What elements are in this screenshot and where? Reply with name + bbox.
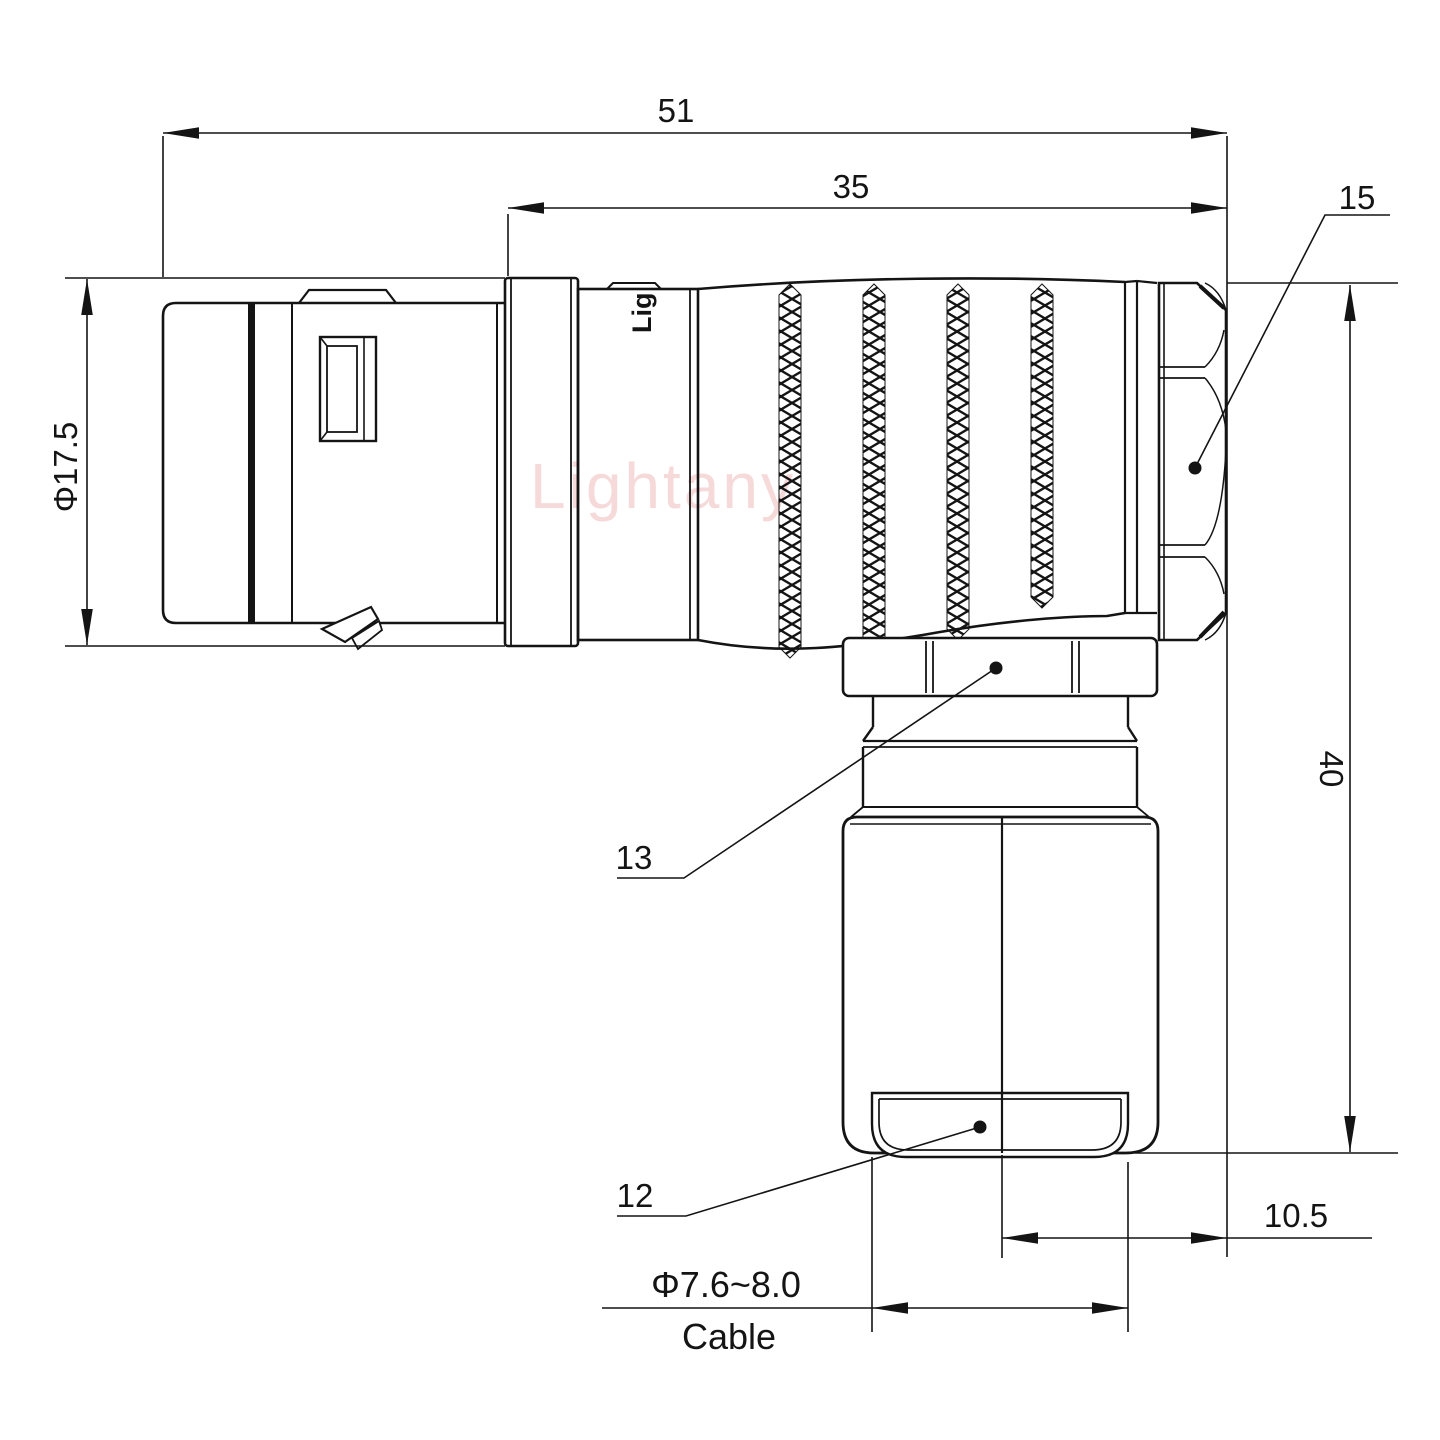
cable-word-label: Cable xyxy=(682,1316,776,1357)
dim-front-diameter-label: Φ17.5 xyxy=(47,422,84,513)
watermark-text: Lightany xyxy=(530,450,796,522)
knurl-bands xyxy=(779,284,1053,658)
connector-drawing-svg: Lightany Lig xyxy=(0,0,1440,1440)
dim-rear-length: 35 xyxy=(508,168,1227,214)
dim-cable: Φ7.6~8.0 Cable xyxy=(602,1264,1128,1357)
front-shell xyxy=(163,290,505,649)
dim-rear-length-label: 35 xyxy=(833,168,870,205)
body-logo-text: Lig xyxy=(627,293,657,334)
dim-overall-length-label: 51 xyxy=(658,92,695,129)
dim-exit-offset-label: 10.5 xyxy=(1264,1197,1328,1234)
dim-height-label: 40 xyxy=(1313,751,1350,788)
dim-exit-offset: 10.5 xyxy=(1002,1197,1372,1244)
technical-drawing-page: Lightany Lig xyxy=(0,0,1440,1440)
dim-front-diameter: Φ17.5 xyxy=(47,279,93,645)
dim-height: 40 xyxy=(1313,285,1356,1152)
sleeve-slot-band xyxy=(248,303,255,623)
part-label-cable-bushing-text: 12 xyxy=(617,1177,654,1214)
part-label-coupling-nut-text: 13 xyxy=(616,839,653,876)
cable-diameter-label: Φ7.6~8.0 xyxy=(651,1264,801,1305)
dim-overall-length: 51 xyxy=(163,92,1227,139)
latch-wedge xyxy=(322,607,382,649)
keying-window xyxy=(320,337,376,441)
elbow-stem xyxy=(851,696,1149,817)
key-bump xyxy=(299,290,396,303)
part-label-back-nut-text: 15 xyxy=(1339,179,1376,216)
back-nut xyxy=(1159,283,1226,640)
